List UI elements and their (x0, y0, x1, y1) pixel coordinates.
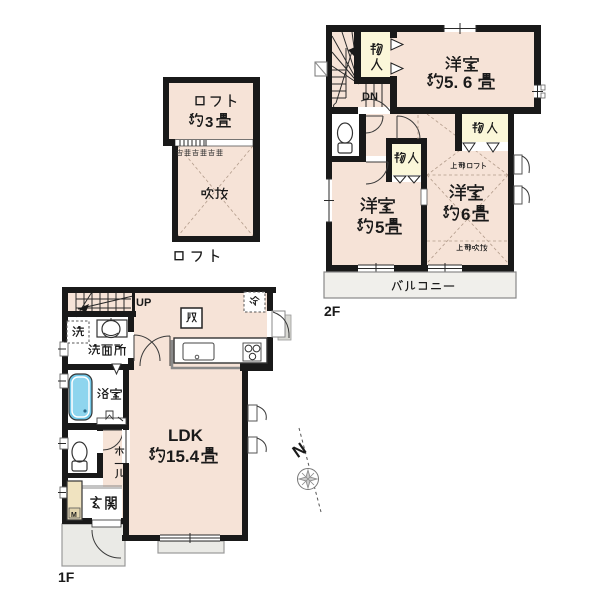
svg-text:5. 6: 5. 6 (444, 73, 472, 92)
svg-text:2F: 2F (324, 303, 341, 319)
svg-text:3: 3 (205, 114, 213, 131)
svg-text:1F: 1F (58, 569, 75, 585)
svg-text:LDK: LDK (168, 426, 204, 445)
svg-text:5: 5 (375, 218, 384, 237)
svg-text:UP: UP (136, 297, 151, 309)
svg-text:6: 6 (461, 205, 470, 224)
svg-text:DN: DN (362, 91, 378, 103)
svg-text:M: M (71, 512, 77, 519)
svg-text:15.4: 15.4 (166, 447, 200, 466)
